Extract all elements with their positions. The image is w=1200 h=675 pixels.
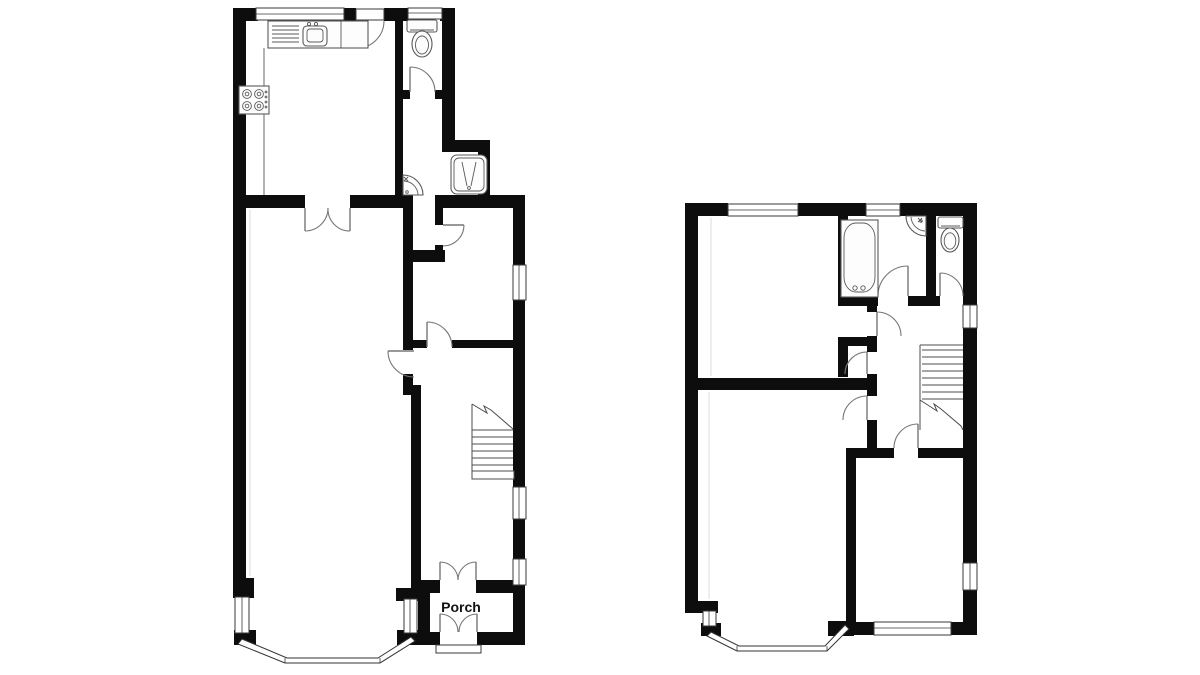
bathroom-door bbox=[878, 266, 908, 296]
landing-window bbox=[963, 305, 977, 328]
ground-floor-plan: Porch bbox=[233, 8, 526, 663]
corner-basin-icon bbox=[906, 216, 926, 236]
ground-floor-fixtures bbox=[239, 20, 514, 576]
kitchen-living-double-door bbox=[305, 208, 350, 231]
shower-icon bbox=[451, 155, 487, 194]
bay-side-window bbox=[703, 611, 716, 626]
kitchen-sink-icon bbox=[268, 21, 368, 48]
floorplan-canvas: Porch bbox=[0, 0, 1200, 675]
bay-window bbox=[707, 625, 849, 651]
front-bedroom-door bbox=[843, 396, 867, 420]
cupboard-door bbox=[443, 225, 464, 246]
bay-side-window-right bbox=[404, 599, 417, 633]
porch-label: Porch bbox=[441, 599, 481, 615]
kitchen-window bbox=[256, 8, 344, 20]
right-bedroom-door bbox=[894, 424, 918, 448]
wc-door bbox=[410, 67, 435, 92]
bay-window bbox=[238, 637, 415, 663]
rear-bedroom-door bbox=[877, 312, 901, 336]
staircase-icon bbox=[920, 345, 963, 430]
living-room-door bbox=[388, 351, 414, 377]
hob-icon bbox=[239, 86, 269, 114]
ground-floor-windows bbox=[235, 8, 526, 663]
toilet-icon bbox=[407, 20, 437, 57]
wc-window bbox=[408, 8, 442, 19]
cupboard-door bbox=[845, 352, 867, 374]
porch-door-sill bbox=[436, 645, 481, 653]
bay-side-window-left bbox=[235, 597, 249, 633]
first-floor-fixtures bbox=[709, 216, 963, 599]
hall-porch-double-door bbox=[440, 562, 476, 580]
porch-entrance-double-door bbox=[440, 614, 477, 632]
first-floor-plan bbox=[685, 203, 977, 651]
first-floor-walls bbox=[685, 203, 977, 636]
bathroom-window bbox=[866, 204, 900, 216]
wc-door bbox=[940, 273, 963, 296]
toilet-icon bbox=[938, 217, 963, 252]
floorplan-drawing: Porch bbox=[0, 0, 1200, 675]
reception-window bbox=[513, 265, 526, 300]
hall-window-upper bbox=[513, 487, 526, 519]
corner-basin-icon bbox=[403, 175, 423, 195]
right-bedroom-side-window bbox=[963, 563, 977, 590]
staircase-icon bbox=[472, 404, 514, 479]
rear-bedroom-window bbox=[728, 204, 798, 216]
reception-door bbox=[427, 322, 452, 347]
right-bedroom-window bbox=[874, 622, 951, 635]
hall-window-lower bbox=[513, 559, 526, 585]
bathtub-icon bbox=[841, 220, 878, 297]
ground-floor-walls bbox=[233, 8, 525, 645]
